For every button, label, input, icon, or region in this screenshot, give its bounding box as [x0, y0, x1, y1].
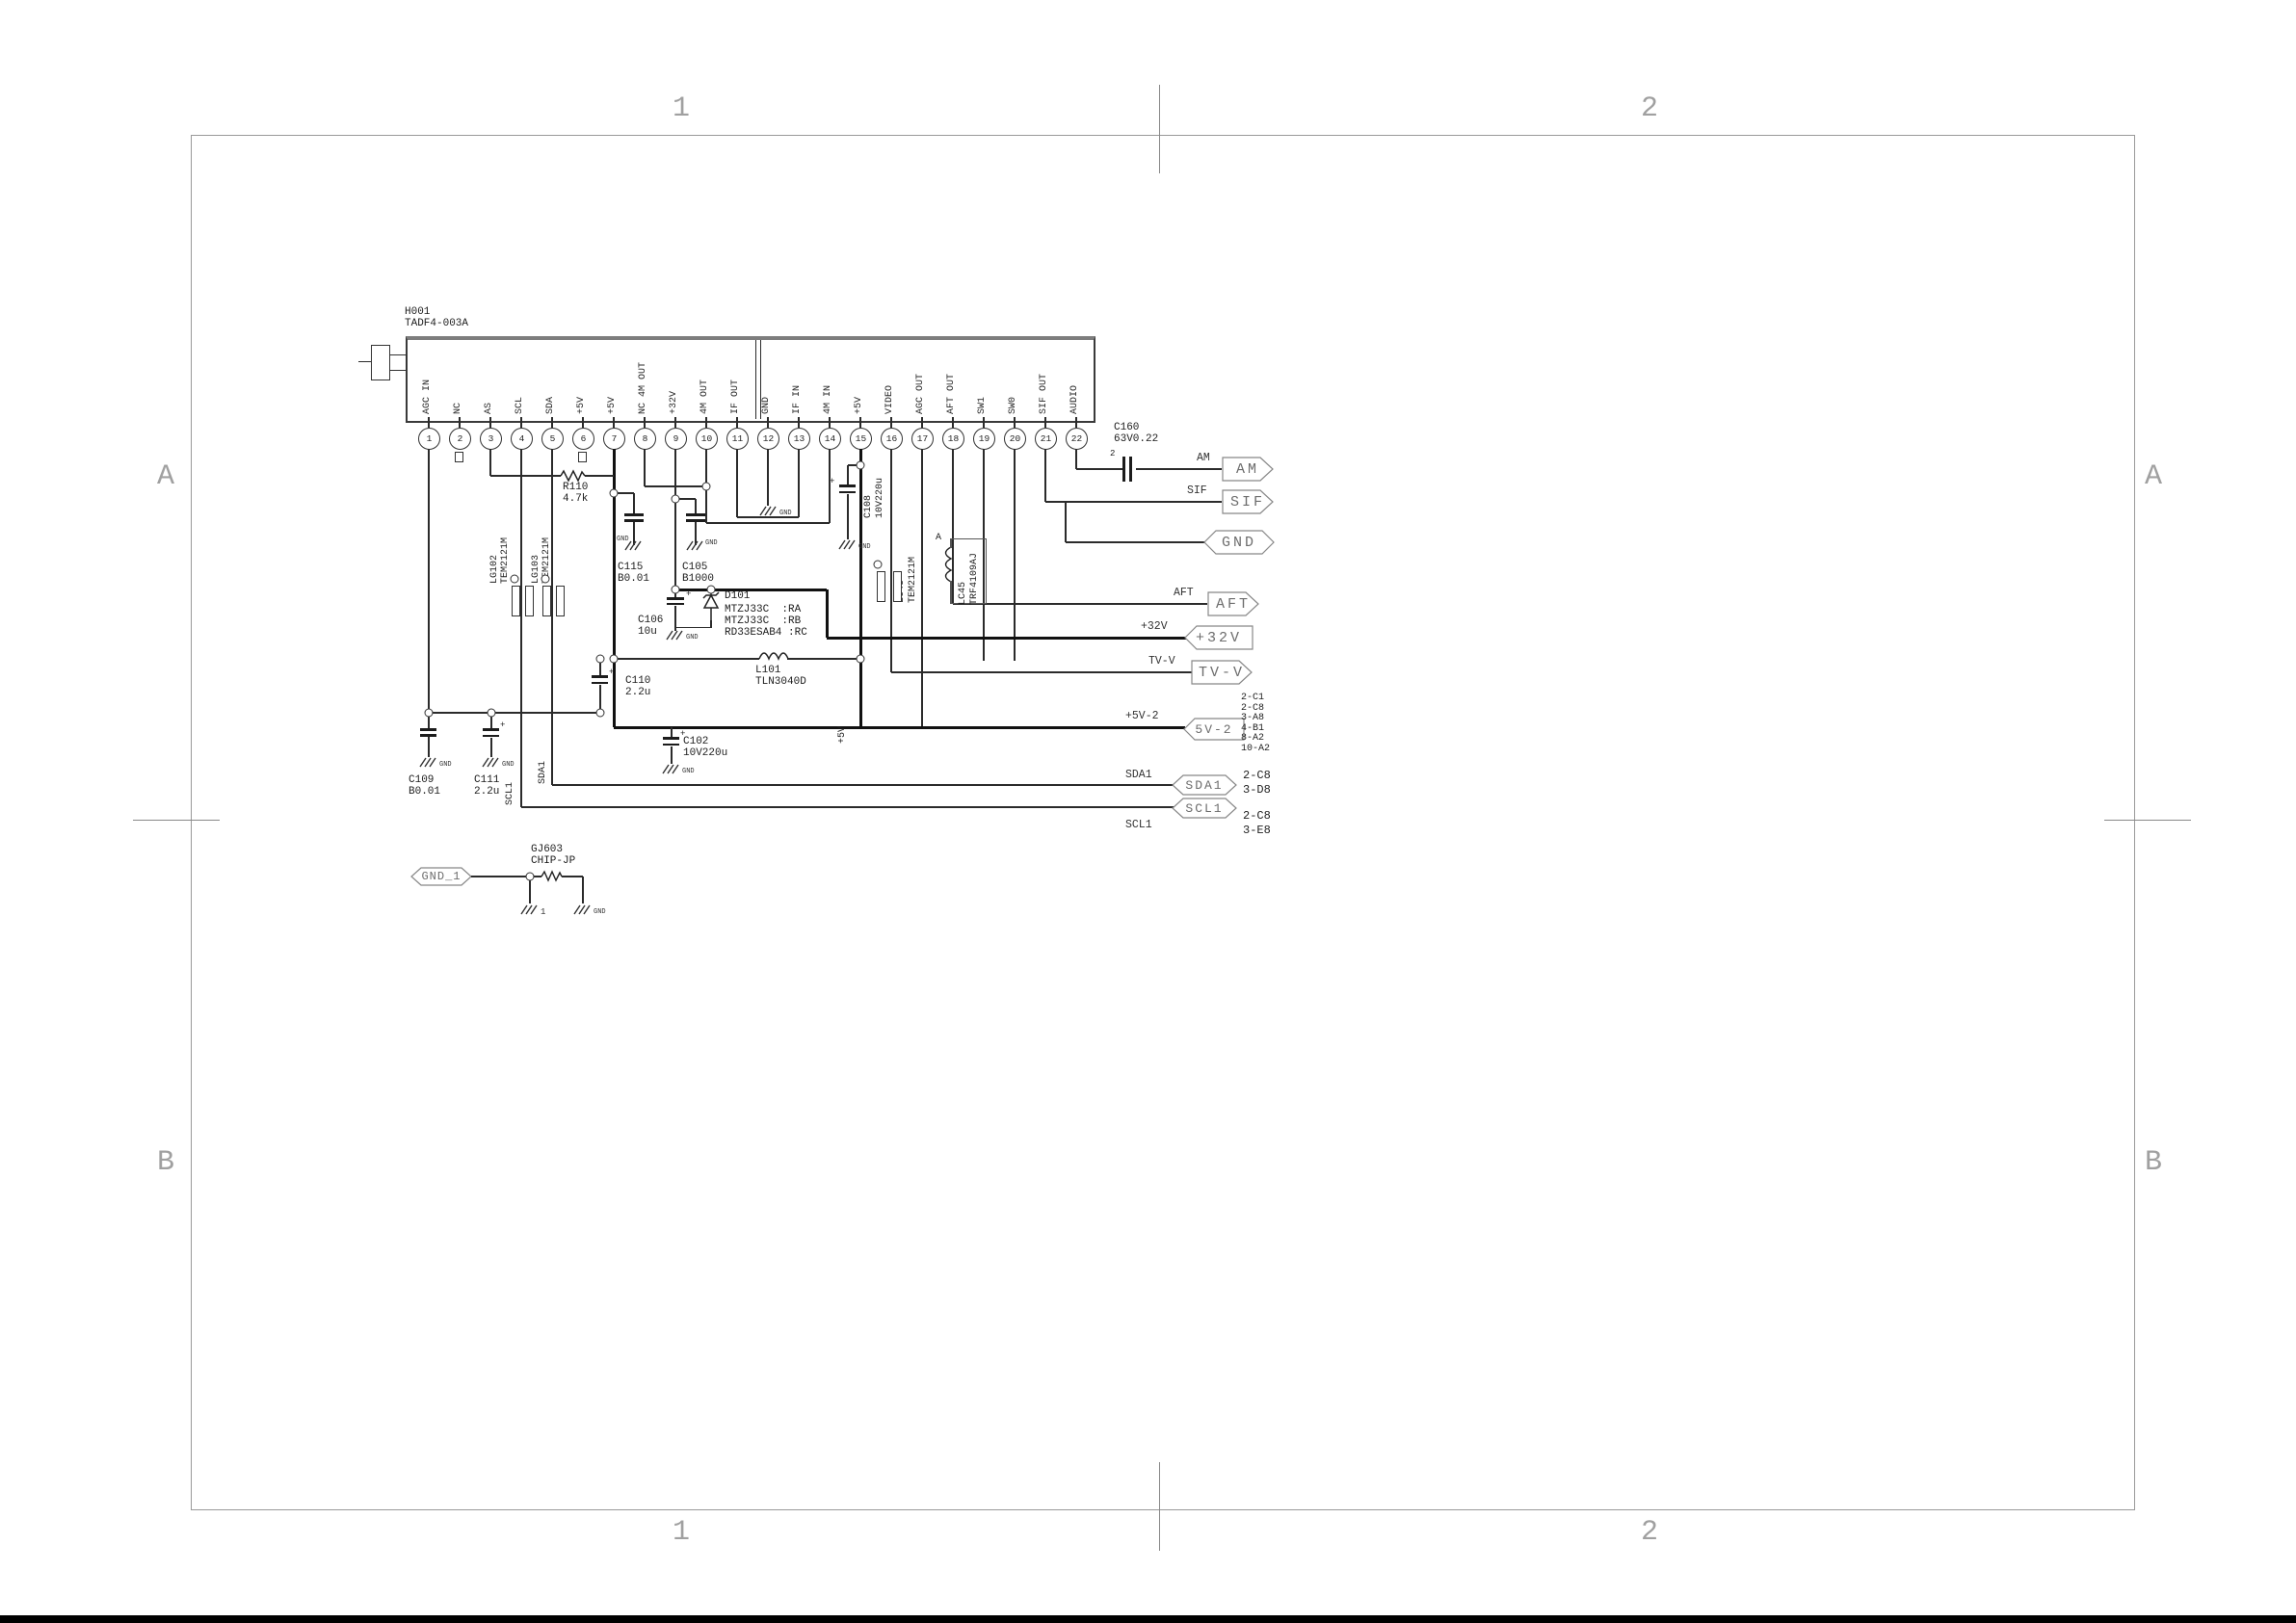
zone-label-top-1: 1 [673, 92, 690, 125]
wire [428, 417, 430, 428]
wire [798, 449, 800, 517]
gnd-label: GND [617, 536, 629, 543]
polarity-plus: + [609, 668, 614, 677]
zone-tick-top [1159, 85, 1160, 173]
flag-sif: SIF [1222, 489, 1274, 514]
wire [736, 449, 738, 517]
lg102-value: TEM2121M [500, 516, 511, 584]
d101-line2: MTZJ33C :RB [725, 615, 801, 628]
zone-label-bottom-2: 2 [1641, 1516, 1658, 1549]
wire [1066, 541, 1205, 543]
cap-c102 [663, 737, 679, 740]
wire [551, 417, 553, 428]
zone-label-right-B: B [2145, 1146, 2162, 1179]
junction [596, 655, 605, 664]
cap-c160 [1122, 457, 1125, 482]
c160-ref: C160 [1114, 422, 1139, 434]
zone-label-right-A: A [2145, 460, 2162, 493]
net-label-sda1: SDA1 [1125, 769, 1152, 781]
junction [541, 575, 550, 584]
wire [706, 522, 830, 524]
c160-marker: 2 [1110, 449, 1115, 459]
c109-value: B0.01 [409, 786, 440, 798]
junction [610, 489, 619, 498]
wire-5v2-bus [614, 726, 1185, 730]
coil-lc45 [943, 547, 953, 582]
junction [857, 461, 865, 470]
wire [633, 493, 635, 513]
junction [425, 709, 434, 718]
cap-c111 [483, 728, 499, 731]
gnd-label: GND [779, 510, 792, 517]
junction [672, 495, 680, 504]
filter-bar [512, 586, 520, 616]
pin-19: 19 [973, 428, 995, 450]
filter-bar [893, 571, 902, 602]
pin-label-22: AUDIO [1069, 341, 1080, 414]
schematic-sheet: 1 2 1 2 A B A B H001 TADF4-003A AGC IN N… [0, 0, 2296, 1623]
nc-marker [578, 452, 587, 462]
c111-ref: C111 [474, 774, 499, 787]
gnd-label: GND [686, 634, 699, 641]
net-label-tvv: TV-V [1148, 655, 1175, 668]
antenna-connector-stub [389, 354, 407, 371]
wire [585, 475, 614, 477]
pin-1: 1 [418, 428, 440, 450]
pin-5: 5 [541, 428, 564, 450]
junction [874, 561, 883, 569]
gnd-label: GND [502, 761, 515, 769]
wire [847, 494, 849, 539]
wire [952, 417, 954, 428]
d101-line3: RD33ESAB4 :RC [725, 627, 807, 640]
net-label-aft: AFT [1174, 587, 1194, 599]
gnd-symbol [665, 629, 684, 641]
pin-9: 9 [665, 428, 687, 450]
wire [429, 712, 600, 714]
net-label-5v2: +5V-2 [1125, 710, 1159, 722]
c102-value: 10V220u [683, 747, 727, 760]
wire [921, 417, 923, 428]
gnd-symbol [837, 538, 857, 551]
polarity-plus: + [500, 720, 505, 730]
flag-5v2: 5V-2 [1183, 718, 1245, 741]
wire [767, 417, 769, 428]
wire [459, 417, 461, 428]
pin-label-4: SCL [515, 341, 525, 414]
wire [695, 499, 697, 513]
cap-c108 [839, 484, 856, 487]
gnd-label-1: 1 [541, 907, 545, 917]
l101-ref: L101 [755, 665, 780, 677]
wire [645, 485, 706, 487]
wire [767, 449, 769, 506]
flag-sda1: SDA1 [1172, 774, 1237, 796]
wire [1014, 449, 1016, 661]
refs-5v2: 2-C1 2-C8 3-A8 4-B1 8-A2 10-A2 [1241, 694, 1270, 754]
lg102-ref: LG102 [489, 516, 500, 584]
flag-am: AM [1222, 457, 1274, 482]
flag-gnd1: GND_1 [410, 867, 472, 886]
c115-ref: C115 [618, 562, 643, 574]
junction [511, 575, 519, 584]
ic-part: TADF4-003A [405, 318, 468, 330]
gnd-symbol [519, 903, 539, 916]
junction [707, 586, 716, 594]
filter-bar [877, 571, 885, 602]
pin-label-7: +5V [607, 341, 618, 414]
c105-ref: C105 [682, 562, 707, 574]
pin-8: 8 [634, 428, 656, 450]
ic-divider [755, 340, 756, 419]
flag-32v: +32V [1184, 625, 1254, 650]
pin-label-12: GND [761, 341, 772, 414]
pin-label-17: AGC OUT [915, 341, 926, 414]
net-label-32v: +32V [1141, 620, 1168, 633]
lc45-marker: A [936, 534, 941, 544]
lg103-value: TEM2121M [541, 516, 552, 584]
lc45-box [986, 538, 987, 604]
bottom-page-edge-bar [0, 1615, 2296, 1623]
pin-label-15: +5V [854, 341, 864, 414]
wire [798, 417, 800, 428]
pin-15: 15 [850, 428, 872, 450]
wire [582, 417, 584, 428]
gnd-label: GND [682, 768, 695, 775]
wire [1045, 501, 1222, 503]
wire-scl1 [521, 806, 1177, 808]
wire-5v [859, 449, 863, 727]
gnd-label: GND [439, 761, 452, 769]
wire [520, 449, 522, 807]
cap-c108 [839, 491, 856, 493]
cap-c111 [483, 735, 499, 737]
cap-c105 [686, 513, 705, 516]
c108-value: 10V220u [875, 460, 885, 518]
zone-tick-right [2104, 820, 2191, 821]
pin-label-9: +32V [669, 341, 679, 414]
junction [596, 709, 605, 718]
lg103-ref: LG103 [531, 516, 541, 584]
net-label-5v: +5V [837, 707, 848, 744]
wire [358, 361, 371, 363]
gj603-value: CHIP-JP [531, 855, 575, 868]
wire [562, 876, 583, 877]
junction [857, 655, 865, 664]
polarity-plus: + [830, 477, 834, 486]
junction [672, 586, 680, 594]
lc45-value: TRF4109AJ [969, 536, 980, 605]
filter-bar [542, 586, 551, 616]
wire [614, 658, 759, 660]
junction [488, 709, 496, 718]
cap-c106 [667, 603, 684, 605]
wire-32v [675, 589, 827, 591]
pin-label-16: VIDEO [884, 341, 895, 414]
r110-ref: R110 [563, 482, 588, 494]
pin-label-10: 4M OUT [699, 341, 710, 414]
c106-value: 10u [638, 626, 657, 639]
resistor-r110 [561, 469, 585, 483]
gnd-symbol [418, 756, 437, 769]
wire [490, 738, 492, 757]
c102-ref: C102 [683, 736, 708, 748]
c110-ref: C110 [625, 675, 650, 688]
wire [489, 449, 491, 476]
antenna-connector [371, 345, 390, 380]
lc45-box [950, 538, 951, 548]
wire [582, 877, 584, 903]
c160-value: 63V0.22 [1114, 433, 1158, 446]
ic-body [406, 336, 1095, 423]
junction [610, 655, 619, 664]
pin-17: 17 [911, 428, 934, 450]
lc45-ref: LC45 [958, 536, 968, 605]
pin-18: 18 [942, 428, 964, 450]
pin-label-19: SW1 [977, 341, 988, 414]
junction [526, 873, 535, 881]
cap-c102 [663, 744, 679, 746]
flag-scl1: SCL1 [1172, 798, 1237, 819]
wire [921, 449, 923, 727]
pin-4: 4 [511, 428, 533, 450]
net-label-sda1-wire: SDA1 [538, 742, 548, 784]
zone-label-left-A: A [157, 460, 174, 493]
wire [736, 417, 738, 428]
net-label-am: AM [1197, 452, 1210, 464]
wire [1044, 449, 1046, 502]
pin-label-6: +5V [576, 341, 587, 414]
pin-21: 21 [1035, 428, 1057, 450]
wire [983, 417, 985, 428]
gnd-label: GND [594, 908, 606, 916]
c110-value: 2.2u [625, 687, 650, 699]
zone-tick-left [133, 820, 220, 821]
wire [1044, 417, 1046, 428]
ic-ref: H001 [405, 306, 430, 319]
wire [675, 627, 712, 629]
c111-value: 2.2u [474, 786, 499, 798]
cap-c106 [667, 597, 684, 600]
pin-label-11: IF OUT [730, 341, 741, 414]
pin-7: 7 [603, 428, 625, 450]
flag-aft: AFT [1207, 591, 1259, 616]
flag-tvv: TV-V [1191, 660, 1253, 685]
wire [428, 737, 430, 757]
filter-bar [525, 586, 534, 616]
pin-label-8: NC 4M OUT [638, 341, 648, 414]
wire [671, 746, 673, 764]
pin-label-1: AGC IN [422, 341, 433, 414]
wire [859, 417, 861, 428]
lc45-box [950, 581, 951, 604]
wire [551, 449, 553, 785]
pin-22: 22 [1066, 428, 1088, 450]
wire [613, 417, 615, 428]
wire [1014, 417, 1016, 428]
pin-label-5: SDA [545, 341, 556, 414]
zone-label-top-2: 2 [1641, 92, 1658, 125]
pin-label-14: 4M IN [823, 341, 833, 414]
gnd-symbol [661, 763, 680, 775]
wire [674, 449, 676, 589]
pin-label-21: SIF OUT [1039, 341, 1049, 414]
r110-value: 4.7k [563, 493, 588, 506]
pin-20: 20 [1004, 428, 1026, 450]
pin-6: 6 [572, 428, 594, 450]
wire [428, 449, 430, 713]
pin-13: 13 [788, 428, 810, 450]
refs-scl1: 2-C8 3-E8 [1243, 809, 1271, 838]
cap-c110 [592, 675, 608, 678]
gnd-label: GND [705, 539, 718, 547]
wire-32v [826, 589, 829, 638]
cap-c115 [624, 513, 644, 516]
zone-tick-bottom [1159, 1462, 1160, 1551]
jumper-gj603 [541, 870, 562, 882]
wire [1075, 417, 1077, 428]
polarity-plus: + [686, 589, 691, 599]
refs-sda1: 2-C8 3-D8 [1243, 769, 1271, 798]
junction [702, 483, 711, 491]
pin-3: 3 [480, 428, 502, 450]
wire [829, 417, 831, 428]
d101-ref: D101 [725, 590, 750, 603]
pin-label-2: NC [453, 341, 463, 414]
pin-label-3: AS [484, 341, 494, 414]
pin-14: 14 [819, 428, 841, 450]
gnd-label: GND [858, 543, 871, 551]
wire [489, 417, 491, 428]
wire [787, 658, 860, 660]
c106-ref: C106 [638, 615, 663, 627]
zone-label-bottom-1: 1 [673, 1516, 690, 1549]
cap-c110 [592, 682, 608, 684]
wire [520, 417, 522, 428]
pin-16: 16 [881, 428, 903, 450]
pin-10: 10 [696, 428, 718, 450]
gj603-ref: GJ603 [531, 844, 563, 856]
gnd-symbol [758, 505, 778, 517]
wire [890, 417, 892, 428]
pin-11: 11 [726, 428, 749, 450]
wire-sda1 [552, 784, 1174, 786]
gnd-symbol [685, 539, 704, 552]
c109-ref: C109 [409, 774, 434, 787]
d101-line1: MTZJ33C :RA [725, 604, 801, 616]
wire [1076, 468, 1122, 470]
wire [1075, 449, 1077, 469]
zone-label-left-B: B [157, 1146, 174, 1179]
wire [705, 417, 707, 428]
wire [644, 449, 646, 486]
c105-value: B1000 [682, 573, 714, 586]
wire [490, 475, 561, 477]
gnd-symbol [481, 756, 500, 769]
inductor-l101 [759, 650, 788, 660]
nc-marker [455, 452, 463, 462]
wire-32v [827, 637, 1186, 640]
cap-c109 [420, 728, 436, 731]
pin-2: 2 [449, 428, 471, 450]
pin-label-13: IF IN [792, 341, 803, 414]
wire [983, 449, 985, 661]
net-label-scl1: SCL1 [1125, 819, 1152, 831]
wire [674, 417, 676, 428]
wire [953, 603, 1207, 605]
pin-label-20: SW0 [1008, 341, 1018, 414]
wire [1136, 468, 1222, 470]
filter-bar [556, 586, 565, 616]
cap-c160 [1129, 457, 1132, 482]
wire [847, 465, 849, 484]
l101-value: TLN3040D [755, 676, 806, 689]
wire [671, 727, 673, 737]
wire [1065, 502, 1067, 542]
wire [891, 671, 1193, 673]
pin-label-18: AFT OUT [946, 341, 957, 414]
flag-gnd: GND [1203, 530, 1275, 555]
c115-value: B0.01 [618, 573, 649, 586]
pin-12: 12 [757, 428, 779, 450]
wire [644, 417, 646, 428]
c108-ref: C108 [863, 460, 874, 518]
gnd-symbol [572, 903, 592, 916]
lc43-value: TEM2121M [908, 539, 918, 603]
net-label-sif: SIF [1187, 484, 1207, 497]
